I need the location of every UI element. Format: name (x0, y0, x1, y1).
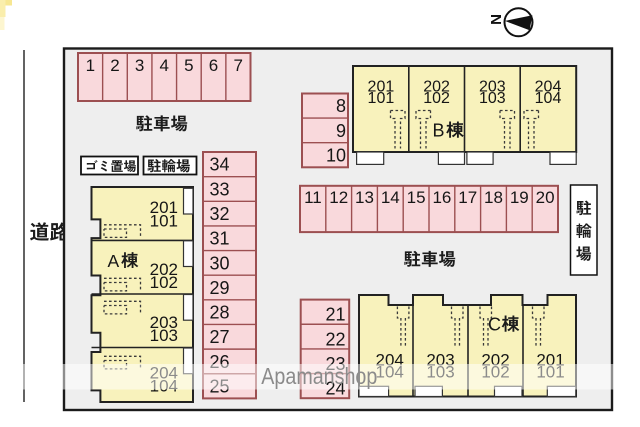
svg-text:17: 17 (458, 188, 477, 207)
svg-text:9: 9 (336, 121, 346, 141)
svg-text:11: 11 (304, 188, 322, 207)
svg-text:6: 6 (209, 56, 218, 75)
svg-text:32: 32 (209, 204, 229, 224)
svg-text:21: 21 (325, 305, 345, 325)
svg-text:13: 13 (355, 188, 374, 207)
svg-text:12: 12 (329, 188, 348, 207)
svg-text:22: 22 (325, 329, 345, 349)
svg-text:Apamanshop: Apamanshop (261, 363, 377, 389)
svg-text:101: 101 (368, 90, 395, 107)
svg-text:3: 3 (135, 56, 144, 75)
svg-text:102: 102 (423, 90, 450, 107)
svg-text:7: 7 (233, 56, 242, 75)
svg-text:18: 18 (484, 188, 503, 207)
svg-text:2: 2 (110, 56, 119, 75)
svg-text:19: 19 (510, 188, 529, 207)
svg-text:B: B (433, 121, 445, 141)
svg-text:4: 4 (160, 56, 169, 75)
svg-text:102: 102 (150, 273, 178, 292)
svg-text:34: 34 (209, 155, 229, 175)
svg-text:30: 30 (209, 253, 229, 273)
svg-text:101: 101 (150, 211, 178, 230)
svg-text:5: 5 (184, 56, 193, 75)
svg-text:10: 10 (326, 145, 346, 165)
svg-text:103: 103 (150, 326, 178, 345)
svg-text:A: A (108, 251, 120, 271)
svg-text:16: 16 (432, 188, 451, 207)
svg-text:8: 8 (336, 96, 346, 116)
svg-text:33: 33 (209, 179, 229, 199)
svg-text:29: 29 (209, 278, 229, 298)
svg-text:C: C (488, 315, 501, 335)
svg-text:103: 103 (479, 90, 506, 107)
svg-text:1: 1 (86, 56, 95, 75)
svg-text:31: 31 (209, 229, 229, 249)
svg-text:20: 20 (536, 188, 555, 207)
svg-text:27: 27 (209, 327, 229, 347)
svg-text:104: 104 (535, 90, 562, 107)
svg-text:28: 28 (209, 303, 229, 323)
svg-text:15: 15 (407, 188, 426, 207)
svg-text:N: N (488, 14, 505, 25)
svg-text:14: 14 (381, 188, 400, 207)
